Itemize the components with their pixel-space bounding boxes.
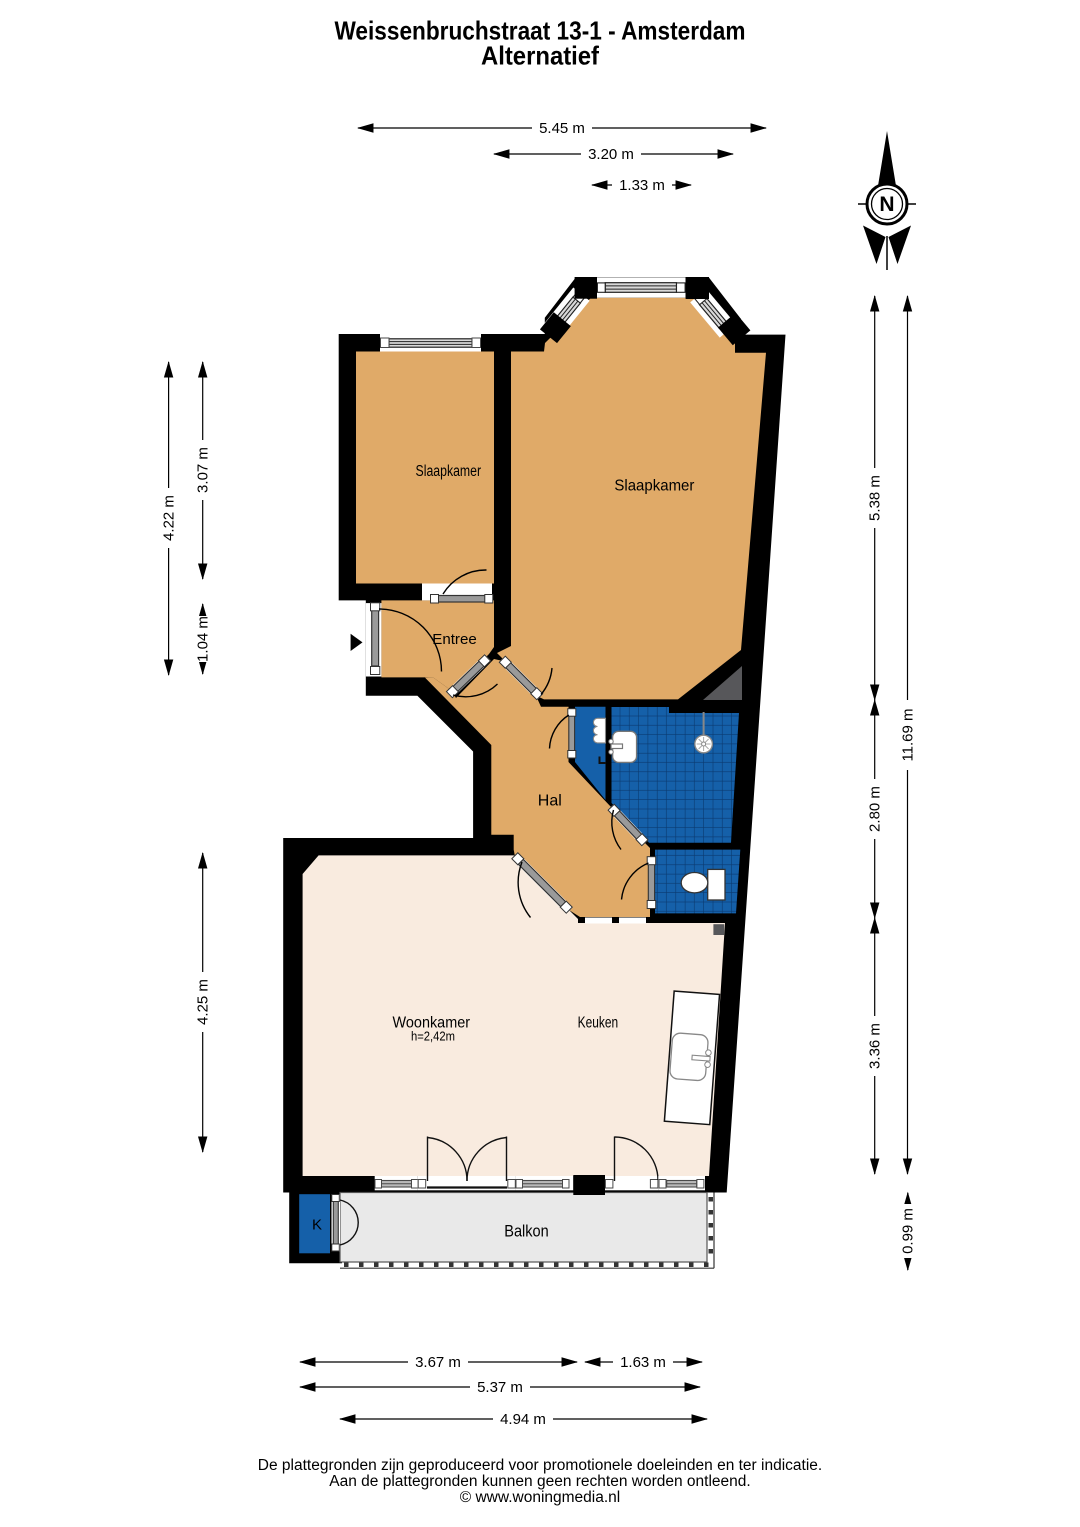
svg-text:Slaapkamer: Slaapkamer: [416, 463, 482, 480]
svg-text:4.94 m: 4.94 m: [500, 1411, 546, 1428]
svg-text:Aan de plattegronden kunnen ge: Aan de plattegronden kunnen geen rechten…: [329, 1473, 750, 1490]
svg-text:Alternatief: Alternatief: [481, 41, 599, 71]
svg-text:0.99 m: 0.99 m: [900, 1208, 917, 1254]
svg-text:11.69 m: 11.69 m: [899, 708, 916, 761]
svg-text:Slaapkamer: Slaapkamer: [614, 478, 695, 495]
svg-text:1.04 m: 1.04 m: [195, 616, 212, 662]
svg-text:3.07 m: 3.07 m: [195, 447, 212, 493]
svg-text:h=2,42m: h=2,42m: [411, 1029, 455, 1044]
svg-text:N: N: [879, 193, 894, 216]
svg-text:Entree: Entree: [432, 631, 477, 648]
svg-text:2.80 m: 2.80 m: [867, 786, 884, 832]
svg-text:4.22 m: 4.22 m: [161, 495, 178, 541]
svg-text:Hal: Hal: [538, 793, 562, 810]
svg-text:5.45 m: 5.45 m: [539, 120, 585, 137]
svg-text:1.33 m: 1.33 m: [619, 177, 665, 194]
svg-text:Balkon: Balkon: [504, 1223, 549, 1241]
svg-text:5.37 m: 5.37 m: [477, 1379, 523, 1396]
svg-text:1.63 m: 1.63 m: [620, 1354, 666, 1371]
svg-text:5.38 m: 5.38 m: [867, 475, 884, 521]
svg-text:3.67 m: 3.67 m: [415, 1354, 461, 1371]
svg-text:Keuken: Keuken: [578, 1014, 619, 1031]
svg-text:4.25 m: 4.25 m: [195, 979, 212, 1025]
svg-text:K: K: [312, 1217, 322, 1234]
svg-text:© www.woningmedia.nl: © www.woningmedia.nl: [460, 1489, 620, 1506]
svg-text:3.36 m: 3.36 m: [867, 1023, 884, 1069]
svg-text:3.20 m: 3.20 m: [588, 146, 634, 163]
svg-text:De plattegronden zijn geproduc: De plattegronden zijn geproduceerd voor …: [258, 1457, 822, 1474]
